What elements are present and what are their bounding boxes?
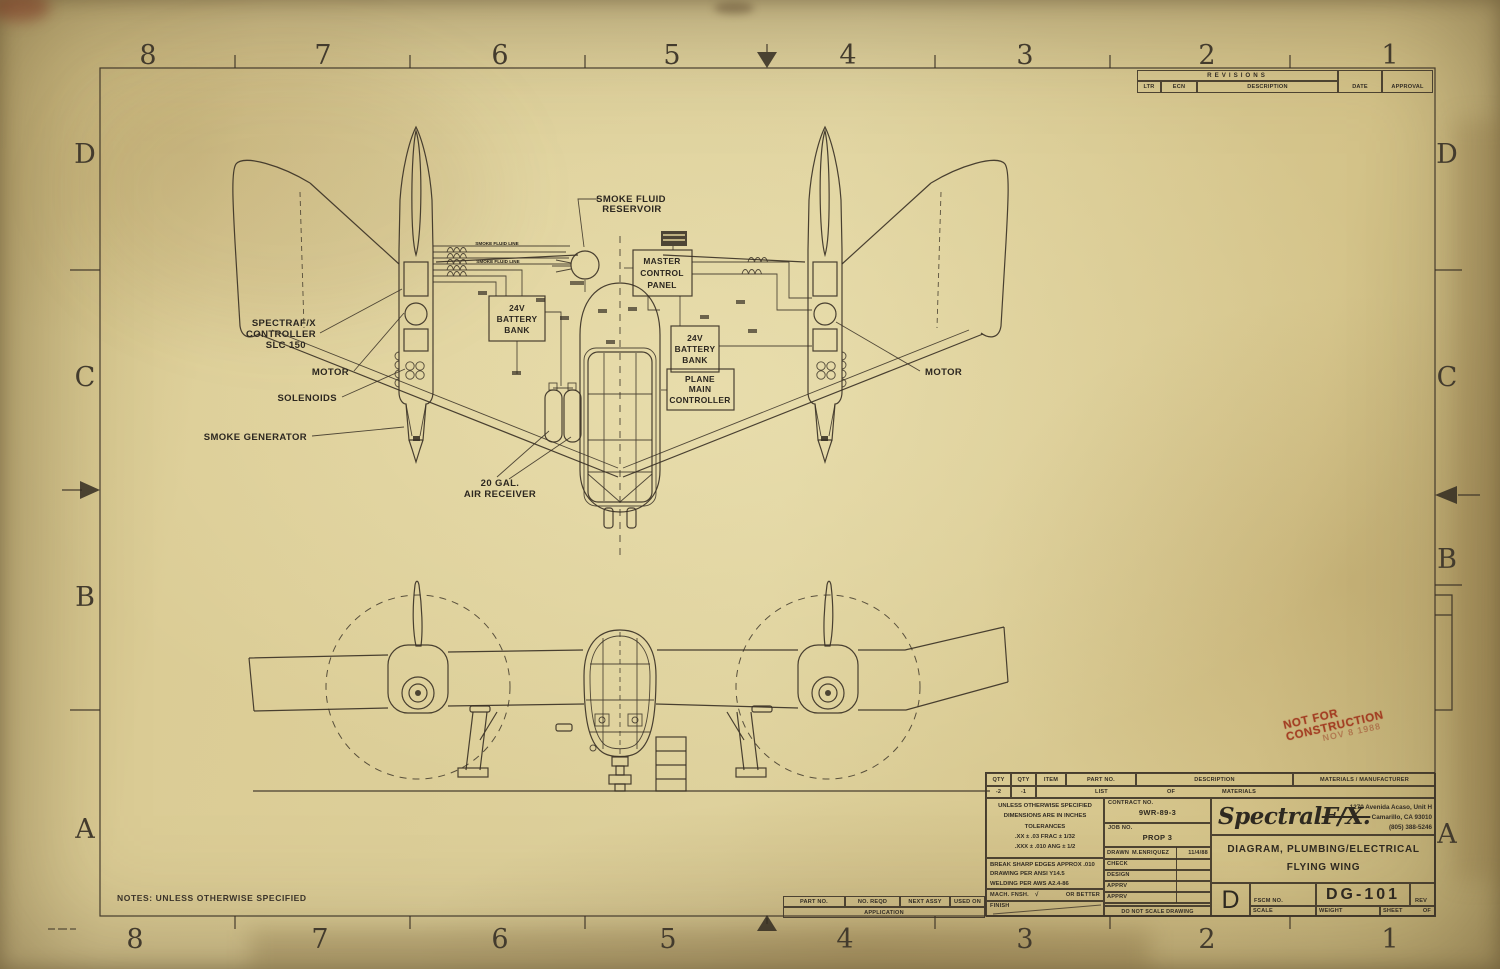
sheet-cell: SHEET OF (1380, 906, 1436, 917)
front-nacelle-left (388, 581, 448, 713)
lom-materials2: MATERIALS (1222, 789, 1256, 795)
svg-text:BANK: BANK (682, 355, 707, 365)
smoke-generator-label: SMOKE GENERATOR (204, 432, 307, 443)
revisions-col-date: DATE (1352, 84, 1368, 90)
revisions-col-ecn: ECN (1173, 84, 1185, 90)
zone-number: 6 (491, 40, 508, 71)
lom-dash1: -1 (1021, 789, 1026, 795)
svg-text:PANEL: PANEL (647, 280, 676, 290)
application-label: APPLICATION (864, 910, 904, 916)
contract-number: 9WR-89-3 (1108, 808, 1207, 817)
finish-cell: FINISH (986, 901, 1104, 917)
motor-right-label: MOTOR (925, 367, 962, 378)
zone-letter: C (1437, 362, 1458, 393)
job-cell: JOB NO. PROP 3 (1104, 823, 1211, 847)
zone-number: 7 (311, 924, 328, 955)
zone-letter: A (74, 814, 95, 845)
zone-number: 4 (839, 40, 856, 71)
revisions-col-ltr: LTR (1143, 84, 1154, 90)
zone-letter: B (1437, 544, 1457, 575)
battery-bank-right-label: 24V (687, 333, 703, 343)
margin-tab (1435, 595, 1452, 710)
zone-letter: A (1436, 819, 1457, 850)
application-used-on: USED ON (954, 899, 981, 905)
drawn-name: M.ENRIQUEZ (1132, 850, 1169, 856)
revisions-col-description: DESCRIPTION (1247, 84, 1287, 90)
notes-text: NOTES: UNLESS OTHERWISE SPECIFIED (117, 893, 307, 903)
motor-left-label: MOTOR (312, 367, 349, 378)
smoke-nozzle (409, 440, 423, 462)
solenoids-label: SOLENOIDS (277, 393, 337, 404)
rev-cell: REV (1410, 883, 1436, 906)
front-nacelle-right (798, 581, 858, 713)
svg-text:MAIN: MAIN (689, 384, 712, 394)
zone-letter: D (74, 139, 96, 170)
air-receiver-label: 20 GAL. (481, 478, 520, 489)
company-logo: SpectralF/X. (1218, 803, 1370, 830)
blueprint-sheet: 8 7 6 5 4 3 2 1 8 7 6 5 4 3 2 1 D C B A … (0, 0, 1500, 969)
zone-letter: D (1436, 139, 1458, 170)
wing-device (661, 231, 687, 246)
lom-dash2: -2 (996, 789, 1001, 795)
design-row: DESIGN (1104, 870, 1211, 881)
smoke-fluid-line-tag: SMOKE FLUID LINE (475, 241, 518, 246)
zone-number: 3 (1016, 924, 1033, 955)
company-address: 1270 Avenida Acaso, Unit H Camarillo, CA… (1350, 803, 1432, 832)
svg-text:CONTROLLER: CONTROLLER (246, 329, 316, 340)
drawing-number-cell: DG-101 (1316, 883, 1410, 906)
size-cell: D (1211, 883, 1250, 917)
battery-bank-left-label: 24V (509, 303, 525, 313)
revisions-block: REVISIONS LTR ECN DESCRIPTION DATE APPRO… (1137, 70, 1433, 93)
application-block: PART NO. NO. REQD NEXT ASSY USED ON APPL… (783, 896, 985, 918)
lom-qty-b: QTY (1017, 777, 1029, 783)
svg-text:CONTROL: CONTROL (640, 268, 684, 278)
standards-block: BREAK SHARP EDGES APPROX .010 DRAWING PE… (986, 858, 1104, 889)
zone-number: 4 (836, 924, 853, 955)
corner-mark (48, 928, 76, 930)
plane-main-controller-label: PLANE (685, 374, 715, 384)
smoke-fluid-line-tag: SMOKE FLUID LINE (476, 259, 519, 264)
zone-number: 3 (1016, 40, 1033, 71)
zone-number: 8 (139, 40, 156, 71)
zone-number: 6 (491, 924, 508, 955)
drawn-row: DRAWN M.ENRIQUEZ 11/4/88 (1104, 847, 1211, 859)
propeller-blade (412, 131, 421, 255)
contract-cell: CONTRACT NO. 9WR-89-3 (1104, 798, 1211, 823)
tolerances-block: UNLESS OTHERWISE SPECIFIED DIMENSIONS AR… (986, 798, 1104, 858)
boarding-ladder (656, 737, 686, 791)
fscm-cell: FSCM NO. (1250, 883, 1316, 906)
nacelle-left (395, 127, 433, 462)
zone-number: 1 (1381, 924, 1398, 955)
air-receiver-tanks (545, 383, 581, 442)
wiring (433, 246, 812, 390)
svg-text:AIR RECEIVER: AIR RECEIVER (464, 489, 536, 500)
application-next-assy: NEXT ASSY (908, 899, 941, 905)
prop-disc-right (736, 595, 920, 779)
title-block: QTY QTY ITEM PART NO. DESCRIPTION MATERI… (985, 772, 1435, 916)
svg-text:BANK: BANK (504, 325, 529, 335)
zone-number: 1 (1381, 40, 1398, 71)
svg-text:SLC 150: SLC 150 (266, 340, 306, 351)
revisions-title: REVISIONS (1207, 72, 1268, 79)
application-part-no: PART NO. (800, 899, 828, 905)
zone-number: 7 (314, 40, 331, 71)
application-no-reqd: NO. REQD (858, 899, 887, 905)
drawing-title: DIAGRAM, PLUMBING/ELECTRICAL FLYING WING (1211, 835, 1436, 883)
lom-qty-a: QTY (992, 777, 1004, 783)
weight-cell: WEIGHT (1316, 906, 1380, 917)
drawing-title-line2: FLYING WING (1287, 859, 1360, 877)
drawn-date: 11/4/88 (1188, 850, 1208, 856)
spectraf-controller-label: SPECTRAF/X (252, 318, 316, 329)
zone-letter: C (75, 362, 96, 393)
master-control-panel-label: MASTER (643, 256, 680, 266)
check-row: CHECK (1104, 859, 1211, 870)
center-arrow-right (1435, 486, 1457, 504)
nacelle-right (808, 127, 846, 462)
revisions-col-approval: APPROVAL (1391, 84, 1423, 90)
zone-number: 2 (1198, 40, 1215, 71)
svg-text:CONTROLLER: CONTROLLER (669, 395, 730, 405)
mach-fnsh-row: MACH. FNSH. √ OR BETTER (986, 889, 1104, 901)
zone-letter: B (75, 582, 95, 613)
motor-circle (405, 303, 427, 325)
svg-text:RESERVOIR: RESERVOIR (602, 204, 661, 215)
logo-cell: SpectralF/X. 1270 Avenida Acaso, Unit H … (1211, 798, 1436, 835)
scale-cell: SCALE (1250, 906, 1316, 917)
job-number: PROP 3 (1108, 833, 1207, 842)
zone-number: 5 (659, 924, 676, 955)
center-arrow-bottom (757, 915, 777, 931)
controller-box (404, 262, 428, 296)
apprv-row: APPRV (1104, 881, 1211, 892)
center-arrow-top (757, 52, 777, 68)
drawing-title-line1: DIAGRAM, PLUMBING/ELECTRICAL (1227, 841, 1419, 859)
zone-number: 8 (126, 924, 143, 955)
lom-materials: MATERIALS / MANUFACTURER (1320, 777, 1409, 783)
zone-number: 2 (1198, 924, 1215, 955)
front-view (249, 581, 1008, 791)
zone-number: 5 (663, 40, 680, 71)
center-arrow-left (80, 481, 100, 499)
front-pod (584, 630, 656, 757)
svg-text:BATTERY: BATTERY (675, 344, 716, 354)
surface-finish-icon: √ (1035, 891, 1038, 898)
lom-item: ITEM (1044, 777, 1058, 783)
apprv-row-2: APPRV (1104, 892, 1211, 903)
svg-text:BATTERY: BATTERY (497, 314, 538, 324)
lom-part-no: PART NO. (1087, 777, 1115, 783)
lom-of: OF (1167, 789, 1175, 795)
do-not-scale-row: DO NOT SCALE DRAWING (1104, 906, 1211, 917)
plan-view: MASTER CONTROL PANEL 24V BATTERY BANK 24… (233, 127, 1008, 560)
lom-list: LIST (1095, 789, 1108, 795)
lom-description: DESCRIPTION (1194, 777, 1234, 783)
